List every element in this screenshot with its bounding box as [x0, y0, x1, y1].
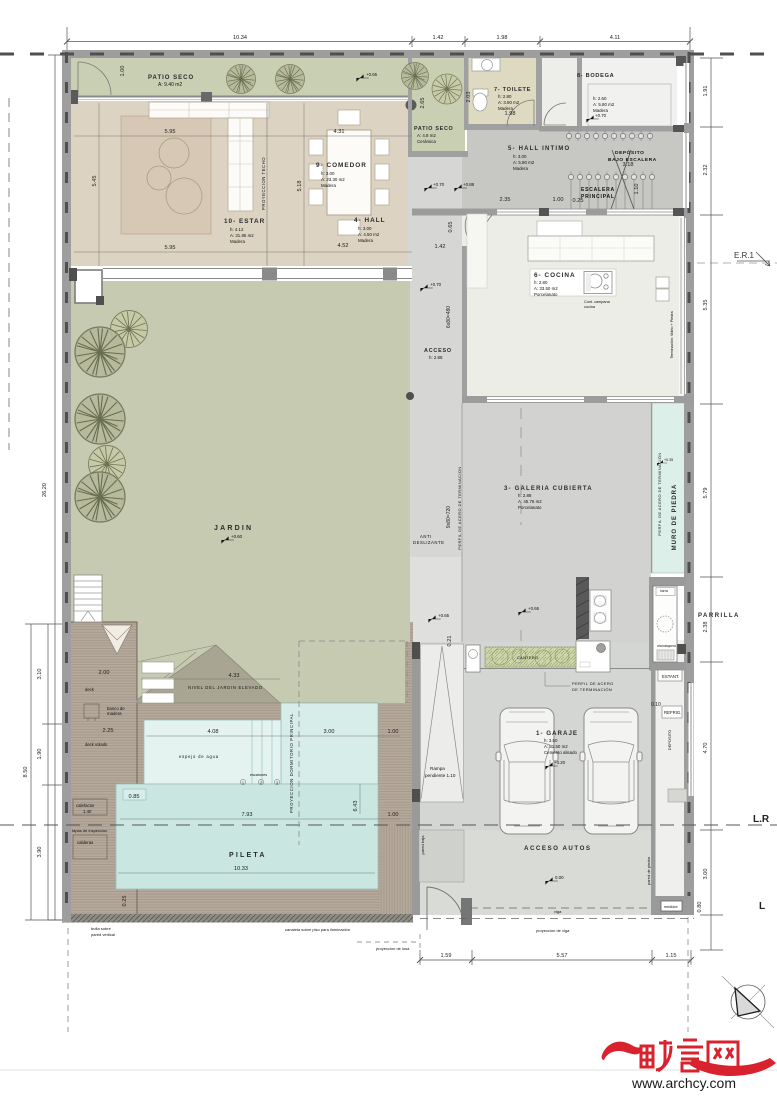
svg-text:8- BODEGA: 8- BODEGA — [577, 73, 614, 79]
svg-text:pared baja: pared baja — [420, 835, 425, 855]
svg-text:Madera: Madera — [358, 238, 373, 243]
svg-text:MURO DE PIEDRA: MURO DE PIEDRA — [672, 484, 678, 551]
svg-text:viga: viga — [554, 909, 562, 914]
svg-text:DESLIZANTE: DESLIZANTE — [413, 540, 445, 545]
svg-text:2.35: 2.35 — [500, 197, 511, 203]
svg-text:pendiente 1.10: pendiente 1.10 — [425, 773, 456, 778]
svg-text:h: 3.50: h: 3.50 — [544, 738, 558, 743]
svg-text:horno: horno — [660, 589, 668, 593]
svg-text:0.25: 0.25 — [122, 896, 128, 907]
svg-text:4.31: 4.31 — [334, 129, 345, 135]
svg-text:A: 5.80 m2: A: 5.80 m2 — [513, 160, 535, 165]
svg-text:1.00: 1.00 — [388, 729, 399, 735]
svg-text:1.90: 1.90 — [37, 749, 43, 760]
svg-text:NIVEL DEL JARDIN ELEVADO: NIVEL DEL JARDIN ELEVADO — [188, 685, 263, 690]
svg-text:10- ESTAR: 10- ESTAR — [224, 218, 265, 225]
svg-text:Madera: Madera — [321, 183, 336, 188]
svg-text:A: 5.80 m2: A: 5.80 m2 — [593, 102, 615, 107]
svg-text:9- COMEDOR: 9- COMEDOR — [316, 162, 367, 169]
svg-text:1: 1 — [242, 781, 244, 785]
svg-text:7.93: 7.93 — [242, 812, 253, 818]
svg-text:5.57: 5.57 — [557, 953, 568, 959]
svg-text:3.00: 3.00 — [324, 729, 335, 735]
svg-text:ACCESO: ACCESO — [424, 348, 452, 354]
svg-text:1.98: 1.98 — [497, 35, 508, 41]
svg-text:3.10: 3.10 — [37, 669, 43, 680]
svg-text:1.00: 1.00 — [120, 66, 126, 77]
svg-text:calefactor: calefactor — [76, 803, 95, 808]
svg-text:5.45: 5.45 — [92, 176, 98, 187]
svg-text:5.79: 5.79 — [703, 488, 709, 499]
svg-text:3: 3 — [276, 781, 278, 785]
svg-text:PROYECCION TECHO: PROYECCION TECHO — [261, 157, 266, 210]
svg-text:A: 3.90 m2: A: 3.90 m2 — [498, 100, 520, 105]
svg-text:5.95: 5.95 — [165, 245, 176, 251]
svg-text:0.21: 0.21 — [447, 636, 453, 647]
svg-text:8.50: 8.50 — [23, 767, 29, 778]
svg-text:Rampa: Rampa — [430, 766, 445, 771]
svg-text:1.98: 1.98 — [505, 111, 516, 117]
svg-text:Madera: Madera — [498, 106, 513, 111]
svg-text:h: 3.00: h: 3.00 — [513, 154, 527, 159]
svg-text:deck: deck — [85, 687, 95, 692]
svg-text:Madera: Madera — [513, 166, 528, 171]
svg-text:Terminación: Vidrio + Piedra: Terminación: Vidrio + Piedra — [670, 310, 674, 358]
svg-text:ESTANT.: ESTANT. — [662, 674, 679, 679]
svg-text:+0.35: +0.35 — [664, 458, 673, 462]
svg-text:+0.65: +0.65 — [366, 72, 378, 77]
svg-text:pared vertical: pared vertical — [91, 932, 115, 937]
svg-text:E.R.1: E.R.1 — [734, 251, 755, 260]
svg-text:4.33: 4.33 — [229, 673, 240, 679]
svg-text:bufia sobre: bufia sobre — [91, 926, 112, 931]
svg-text:+0.88: +0.88 — [463, 182, 475, 187]
svg-text:6.43: 6.43 — [353, 801, 359, 812]
svg-text:calderas: calderas — [77, 840, 93, 845]
svg-text:4.70: 4.70 — [703, 743, 709, 754]
svg-text:PRINCIPAL: PRINCIPAL — [581, 194, 615, 200]
svg-text:A: 4.8 m2: A: 4.8 m2 — [417, 133, 436, 138]
svg-text:PERFIL DE ACERO DE TERMINACION: PERFIL DE ACERO DE TERMINACION — [457, 466, 462, 549]
svg-text:CANTERO: CANTERO — [517, 656, 538, 660]
svg-text:3.90: 3.90 — [37, 847, 43, 858]
svg-text:L: L — [759, 901, 765, 912]
svg-text:Porcelanato: Porcelanato — [534, 292, 558, 297]
svg-text:cocina: cocina — [584, 305, 596, 309]
svg-text:madera: madera — [107, 711, 122, 716]
svg-text:www.archcy.com: www.archcy.com — [631, 1075, 736, 1091]
svg-text:0.10: 0.10 — [651, 702, 661, 708]
svg-text:6x80=480: 6x80=480 — [446, 306, 452, 328]
svg-text:JARDIN: JARDIN — [214, 525, 253, 532]
svg-text:Cerámica: Cerámica — [417, 139, 436, 144]
svg-text:A: 33.50 m2: A: 33.50 m2 — [534, 286, 558, 291]
svg-text:h: 2.88: h: 2.88 — [518, 493, 532, 498]
svg-text:+0.65: +0.65 — [528, 606, 540, 611]
svg-text:1.15: 1.15 — [666, 953, 677, 959]
svg-text:1.91: 1.91 — [703, 86, 709, 97]
svg-text:1.40: 1.40 — [83, 809, 92, 814]
svg-text:proyeccion de viga: proyeccion de viga — [536, 928, 570, 933]
svg-text:+0.70: +0.70 — [430, 282, 442, 287]
svg-text:PATIO SECO: PATIO SECO — [148, 75, 194, 81]
svg-text:1.42: 1.42 — [435, 244, 446, 250]
svg-text:DEPOSITO: DEPOSITO — [667, 730, 672, 751]
svg-text:ANTI: ANTI — [420, 534, 432, 539]
svg-text:Madera: Madera — [230, 239, 245, 244]
svg-text:Cont. campana: Cont. campana — [584, 300, 611, 304]
svg-text:4.08: 4.08 — [208, 729, 219, 735]
svg-text:10.33: 10.33 — [234, 866, 248, 872]
svg-text:deck volado: deck volado — [85, 742, 108, 747]
svg-text:L.R: L.R — [753, 814, 770, 825]
svg-text:h: 3.00: h: 3.00 — [321, 171, 335, 176]
svg-text:A: 9.40 m2: A: 9.40 m2 — [158, 82, 182, 88]
svg-text:ACCESO AUTOS: ACCESO AUTOS — [524, 845, 592, 852]
svg-text:0.00: 0.00 — [555, 875, 564, 880]
svg-text:5.18: 5.18 — [297, 181, 303, 192]
svg-text:Cemento alisado: Cemento alisado — [544, 750, 578, 755]
svg-text:1.00: 1.00 — [553, 197, 564, 203]
svg-text:proyeccion de losa: proyeccion de losa — [376, 946, 410, 951]
svg-text:2.03: 2.03 — [466, 92, 472, 103]
svg-text:+0.65: +0.65 — [438, 613, 450, 618]
svg-text:4- HALL: 4- HALL — [354, 217, 386, 224]
svg-text:1- GARAJE: 1- GARAJE — [536, 730, 578, 737]
svg-text:A: 45.76 m2: A: 45.76 m2 — [518, 499, 542, 504]
svg-text:+0.70: +0.70 — [433, 182, 445, 187]
svg-text:A: 23.30 m2: A: 23.30 m2 — [321, 177, 345, 182]
svg-text:medidor: medidor — [664, 905, 678, 909]
svg-text:2.38: 2.38 — [703, 622, 709, 633]
svg-text:PERFIL DE ACERO: PERFIL DE ACERO — [572, 681, 614, 686]
svg-text:A: 31.50 m2: A: 31.50 m2 — [544, 744, 568, 749]
svg-text:escalones: escalones — [250, 773, 267, 777]
svg-text:h: 2.80: h: 2.80 — [498, 94, 512, 99]
svg-text:+0.70: +0.70 — [595, 113, 607, 118]
svg-text:h: 4.12: h: 4.12 — [230, 227, 244, 232]
svg-text:2: 2 — [260, 781, 262, 785]
svg-text:PARRILLA: PARRILLA — [698, 613, 740, 619]
svg-text:0.85: 0.85 — [129, 794, 140, 800]
svg-text:ESCALERA: ESCALERA — [581, 187, 615, 193]
svg-text:5.95: 5.95 — [165, 129, 176, 135]
svg-text:BAJO ESCALERA: BAJO ESCALERA — [608, 157, 657, 163]
svg-text:10.34: 10.34 — [233, 35, 247, 41]
svg-text:A: 4.50 m2: A: 4.50 m2 — [358, 232, 380, 237]
svg-text:2.65: 2.65 — [420, 98, 426, 109]
svg-text:2.25: 2.25 — [103, 728, 114, 734]
svg-text:5- HALL INTIMO: 5- HALL INTIMO — [508, 146, 570, 152]
svg-text:PILETA: PILETA — [229, 852, 267, 859]
svg-text:Porcelanato: Porcelanato — [518, 505, 542, 510]
svg-text:+0.60: +0.60 — [231, 534, 243, 539]
svg-text:h: 2.88: h: 2.88 — [429, 355, 443, 360]
svg-text:9x80=720: 9x80=720 — [446, 506, 452, 528]
svg-text:+0.20: +0.20 — [554, 760, 566, 765]
svg-text:0.80: 0.80 — [697, 902, 703, 913]
svg-text:1.00: 1.00 — [388, 812, 399, 818]
svg-text:A: 31.85 m2: A: 31.85 m2 — [230, 233, 254, 238]
svg-text:3- GALERIA CUBIERTA: 3- GALERIA CUBIERTA — [504, 486, 593, 492]
svg-text:3.00: 3.00 — [703, 869, 709, 880]
svg-text:1.59: 1.59 — [441, 953, 452, 959]
svg-text:canaleta sobre piso para ilumi: canaleta sobre piso para iluminación — [285, 927, 350, 932]
svg-text:PROYECCION DORMITORIO PRINCIPA: PROYECCION DORMITORIO PRINCIPAL — [289, 713, 294, 813]
svg-text:5.35: 5.35 — [703, 300, 709, 311]
svg-text:h: 3.00: h: 3.00 — [358, 226, 372, 231]
svg-text:4.52: 4.52 — [338, 243, 349, 249]
svg-text:1.42: 1.42 — [433, 35, 444, 41]
svg-text:h: 2.60: h: 2.60 — [593, 96, 607, 101]
svg-text:6- COCINA: 6- COCINA — [534, 272, 576, 279]
svg-text:espejo de agua: espejo de agua — [179, 754, 219, 759]
svg-text:26.20: 26.20 — [42, 483, 48, 497]
svg-text:tapas de inspeccion: tapas de inspeccion — [72, 828, 107, 833]
svg-text:0.65: 0.65 — [448, 222, 454, 233]
svg-text:DE TERMINACIÓN: DE TERMINACIÓN — [572, 687, 612, 692]
svg-text:2.00: 2.00 — [99, 670, 110, 676]
svg-text:2.32: 2.32 — [703, 165, 709, 176]
svg-text:REFRIG.: REFRIG. — [664, 710, 681, 715]
svg-text:PATIO SECO: PATIO SECO — [414, 126, 453, 132]
svg-text:1.10: 1.10 — [634, 184, 640, 195]
svg-text:4.11: 4.11 — [610, 35, 620, 41]
svg-text:churrasquera: churrasquera — [657, 644, 676, 648]
svg-text:h: 2.80: h: 2.80 — [534, 280, 548, 285]
svg-text:7- TOILETE: 7- TOILETE — [494, 87, 531, 93]
svg-text:pared de piedra: pared de piedra — [646, 856, 651, 885]
